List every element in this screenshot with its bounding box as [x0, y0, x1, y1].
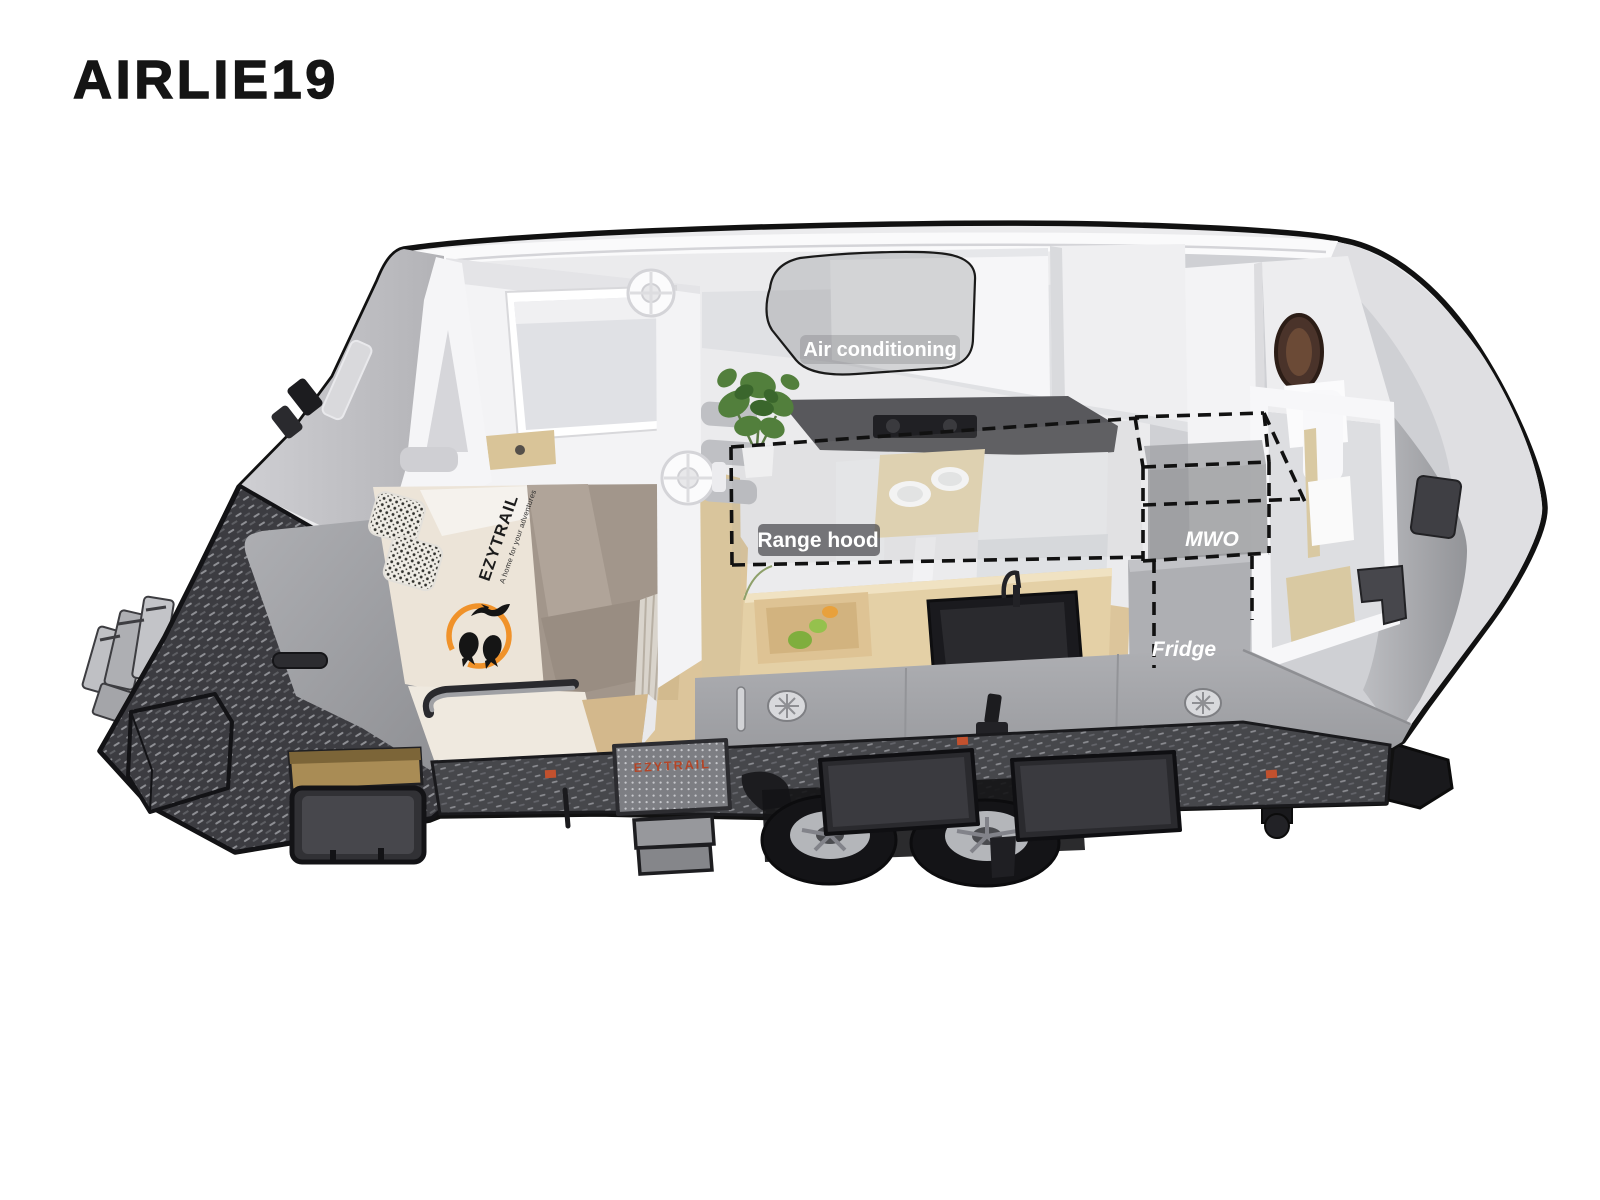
svg-text:Air conditioning: Air conditioning	[803, 339, 956, 361]
svg-text:Range hood: Range hood	[757, 529, 878, 552]
svg-text:Fridge: Fridge	[1152, 638, 1216, 661]
svg-text:AIRLIE19: AIRLIE19	[73, 50, 339, 110]
svg-text:MWO: MWO	[1185, 528, 1239, 551]
